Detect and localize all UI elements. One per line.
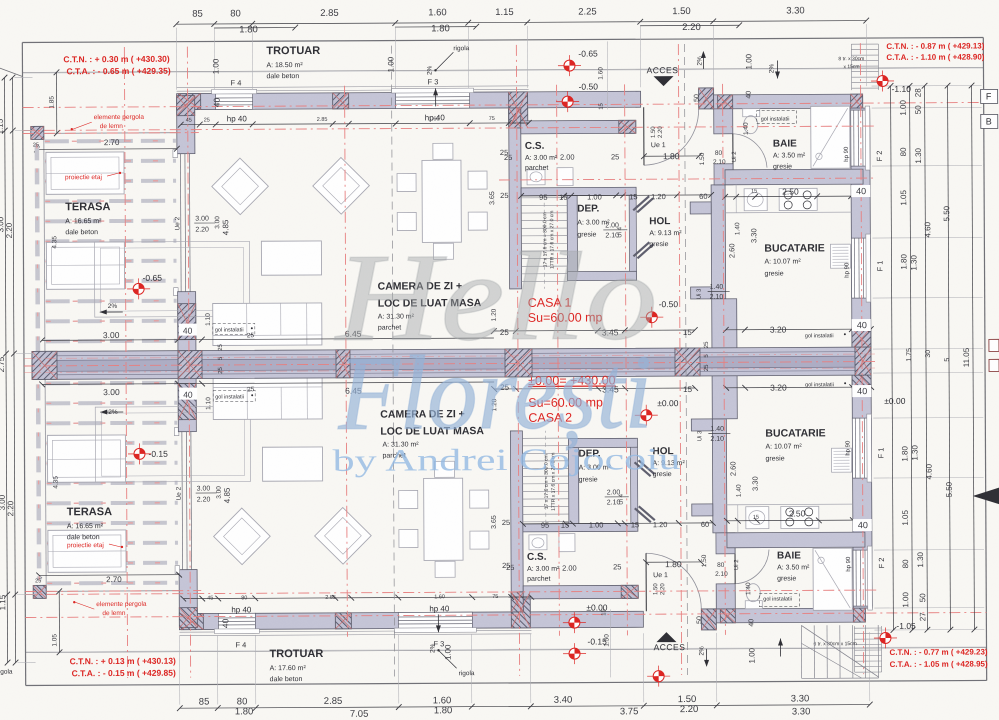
svg-text:by Andrei Cojocoiu: by Andrei Cojocoiu [332, 441, 680, 478]
